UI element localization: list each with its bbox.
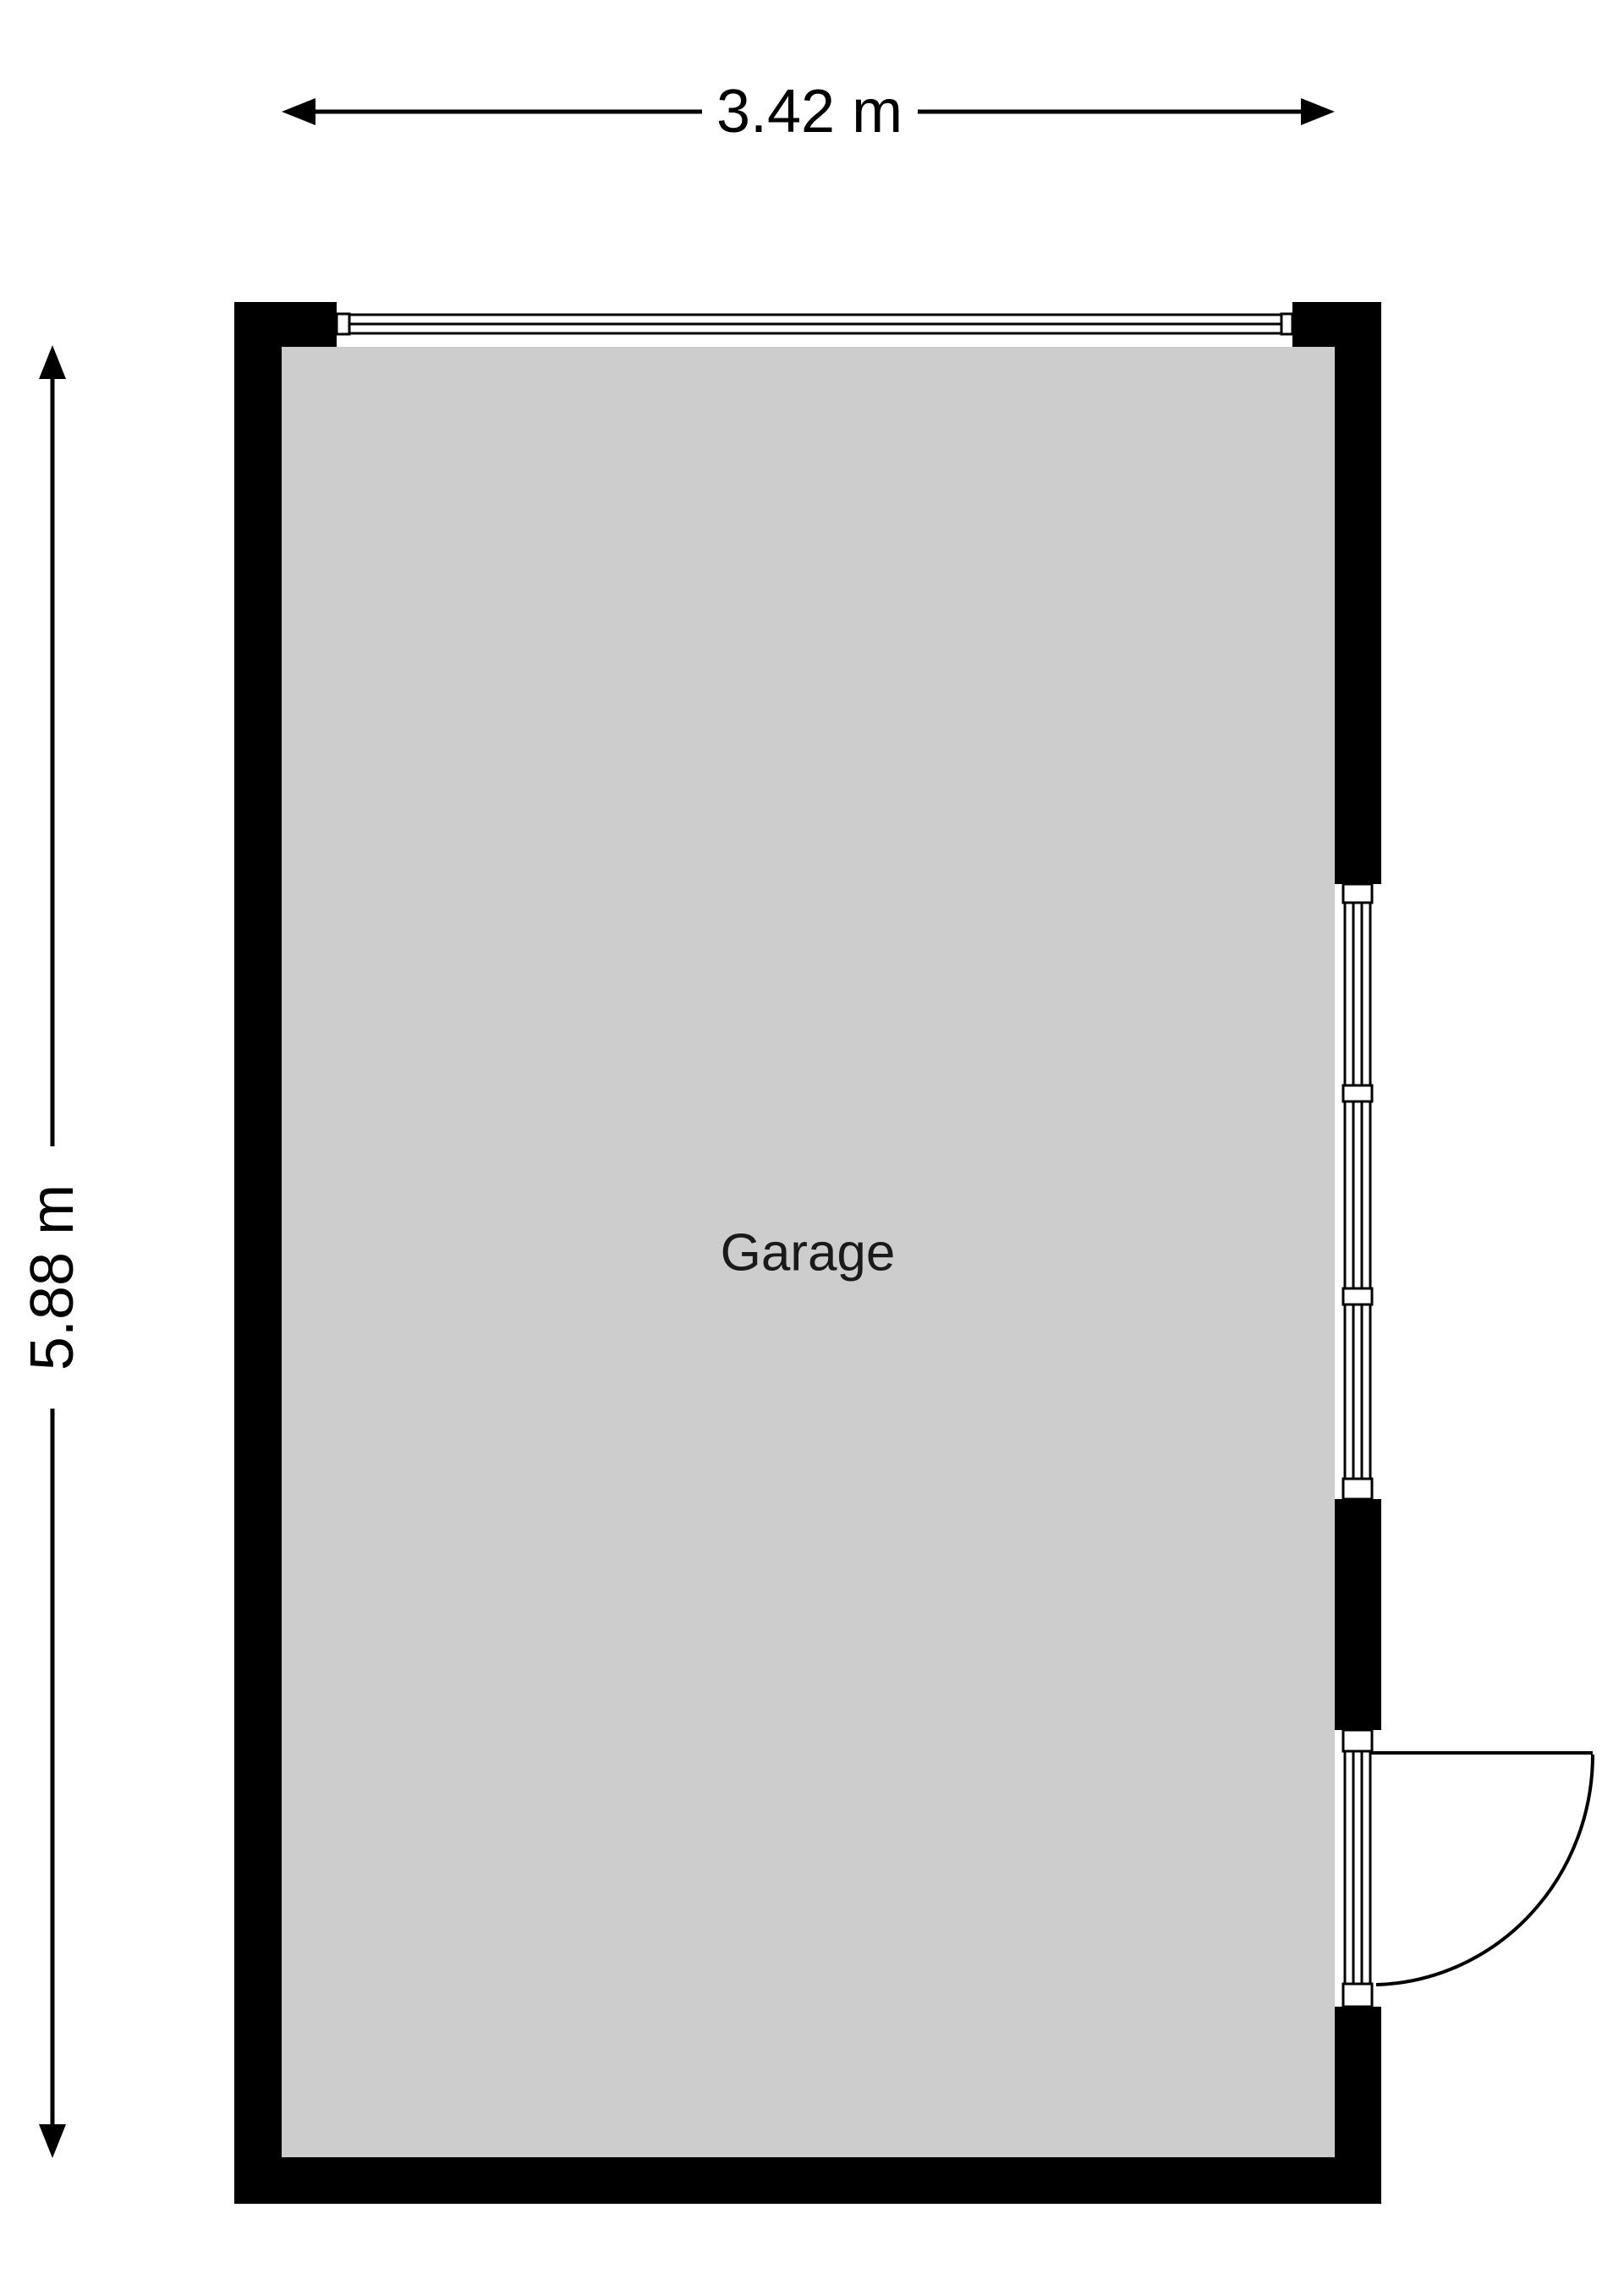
entry-door-jamb-top [1343, 1730, 1372, 1751]
floorplan-page: 3.42 m 5.88 m Garage [0, 0, 1624, 2296]
window [1335, 884, 1381, 1499]
window-jamb-bottom [1343, 1479, 1372, 1499]
garage-door-jamb-right [1281, 314, 1292, 334]
width-dimension-label: 3.42 m [716, 78, 903, 146]
window-mullion-1 [1343, 1085, 1372, 1101]
entry-door-opening [1335, 1730, 1381, 2007]
garage-door-jamb-left [337, 314, 349, 334]
garage-door [337, 302, 1292, 347]
window-mullion-2 [1343, 1288, 1372, 1305]
floorplan-canvas: 3.42 m 5.88 m Garage [0, 0, 1624, 2296]
window-jamb-top [1343, 884, 1372, 903]
room-label: Garage [721, 1224, 896, 1283]
height-dimension-label: 5.88 m [19, 1184, 86, 1370]
window-opening [1335, 884, 1381, 1499]
entry-door-jamb-bottom [1343, 1984, 1372, 2007]
